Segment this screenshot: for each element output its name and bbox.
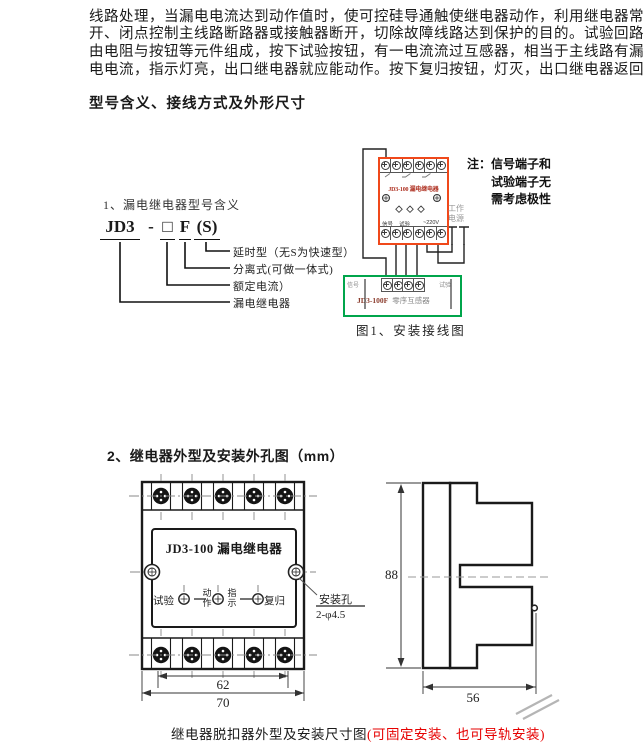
terminal-cell [437,227,447,240]
side-view-drawing [386,483,559,719]
footer-caption: 继电器脱扣器外型及安装尺寸图(可固定安装、也可导轨安装) [171,723,545,743]
model-subtitle: 1、漏电继电器型号含义 [103,196,240,213]
manual-page: 线路处理，当漏电电流达到动作值时，使可控硅导通触使继电器动作，利用继电器常 开、… [0,0,644,747]
terminal-cell [414,159,425,172]
terminal-cell [413,278,425,292]
break-mark-icon [516,695,559,719]
screw-terminal-icon [415,229,424,238]
power-supply-label: 工作 电源 [448,204,464,223]
intro-line-4: 电电流，指示灯亮，出口继电器就应能动作。按下复归按钮，灯灭，出口继电器返回。 [89,58,644,79]
mounting-hole-label: 安装孔 [319,591,352,607]
model-fork-lines [120,242,230,302]
screw-terminal-icon [403,229,412,238]
test-button-label: 试验 [153,593,174,608]
mounting-hole-icon [145,565,160,580]
terminal-cell [425,227,436,240]
section1-heading: 型号含义、接线方式及外形尺寸 [89,92,306,113]
dimension-56 [423,613,536,694]
terminal-cell [437,159,447,172]
figure1-caption: 图1、安装接线图 [356,320,466,339]
terminal-cell [380,227,391,240]
indicate-lamp-label: 指 示 [226,589,238,608]
legend-separate: 分离式(可做一体式) [233,261,333,277]
dim-62-label: 62 [207,677,239,693]
terminal-cell [380,159,391,172]
screw-terminal-icon [426,161,435,170]
model-code: JD3 - □ F (S) [100,217,230,243]
terminal-cell [403,227,414,240]
model-separate: F [179,217,191,240]
relay-name-label: JD3-100 漏电继电器 [380,184,447,193]
legend-relay: 漏电继电器 [233,295,291,311]
screw-terminal-icon [426,229,435,238]
screw-terminal-icon [437,229,446,238]
front-device-label: JD3-100 漏电继电器 [152,538,296,557]
note-line: 注：信号端子和 [467,156,551,174]
model-box: □ [160,217,175,240]
model-dash: - [146,217,156,239]
dim-70-label: 70 [207,695,239,711]
relay-bottom-terminal-strip [380,226,447,240]
screw-terminal-icon [415,161,424,170]
ct-name-label: JD3-100F零序互感器 [357,295,430,306]
note-line: 试验端子无 [467,174,551,192]
relay-unit: JD3-100 漏电继电器 信号 试验 ~220V [378,157,449,245]
terminal-cell [403,159,414,172]
mounting-hole-spec: 2-φ4.5 [316,609,345,621]
model-delay: (S) [194,217,220,240]
screw-terminal-icon [404,281,413,290]
screw-terminal-icon [381,161,390,170]
terminal-cell [391,159,402,172]
note-line: 需考虑极性 [467,191,551,209]
dim-56-label: 56 [461,690,485,706]
screw-terminal-icon [381,229,390,238]
terminal-cell [391,227,402,240]
front-buttons-icons [179,585,263,604]
power-terminal-icon [447,227,469,245]
legend-current: 额定电流） [233,278,291,294]
terminal-cell [425,159,436,172]
footer-caption-red: (可固定安装、也可导轨安装) [367,727,545,742]
ct-signal-label: 信号 [347,280,359,289]
ct-unit: 信号 试验 JD3-100F零序互感器 [343,275,462,317]
mounting-hole-icon [289,565,304,580]
screw-terminal-icon [415,281,424,290]
screw-terminal-icon [392,161,401,170]
screw-terminal-icon [403,161,412,170]
wiring-note: 注：信号端子和 试验端子无 需考虑极性 [467,156,551,209]
screw-terminal-icon [392,229,401,238]
screw-terminal-icon [437,161,446,170]
screw-terminal-icon [153,488,169,504]
front-view-drawing [129,474,365,701]
relay-top-terminal-strip [380,159,447,173]
reset-button-label: 复归 [264,593,285,608]
ct-test-label: 试验 [439,280,451,289]
action-lamp-label: 动 作 [201,589,213,608]
section2-heading: 2、继电器外型及安装外孔图（mm） [107,446,344,466]
rail-pin-icon [532,605,538,611]
legend-delay: 延时型（无S为快速型） [233,244,355,260]
model-series: JD3 [100,217,140,240]
screw-terminal-icon [383,281,392,290]
terminal-cell [414,227,425,240]
dim-88-label: 88 [380,567,398,583]
footer-caption-black: 继电器脱扣器外型及安装尺寸图 [171,727,367,742]
